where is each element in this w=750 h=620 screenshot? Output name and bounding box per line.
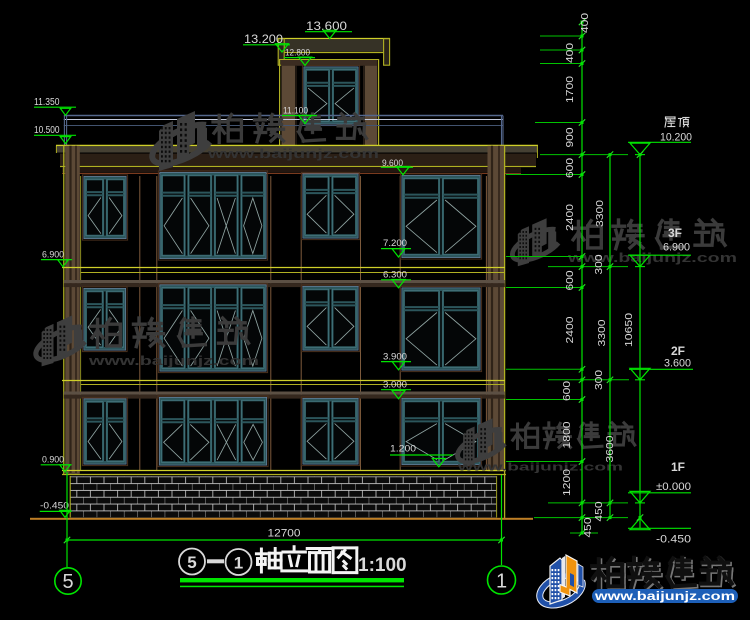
svg-text:www.baijunjz.com: www.baijunjz.com <box>206 146 379 161</box>
svg-text:6.900: 6.900 <box>663 242 690 254</box>
svg-text:400: 400 <box>579 13 591 33</box>
svg-text:www.baijunjz.com: www.baijunjz.com <box>456 462 623 474</box>
svg-text:1: 1 <box>496 571 507 593</box>
svg-text:1200: 1200 <box>561 469 573 496</box>
svg-text:1800: 1800 <box>561 421 573 448</box>
svg-text:12700: 12700 <box>268 528 301 540</box>
svg-text:3.000: 3.000 <box>383 380 407 391</box>
svg-text:1:100: 1:100 <box>358 555 407 576</box>
svg-text:1.200: 1.200 <box>390 444 416 455</box>
svg-text:2F: 2F <box>671 344 685 358</box>
svg-text:2400: 2400 <box>564 316 576 343</box>
svg-text:300: 300 <box>593 370 605 390</box>
svg-text:6.900: 6.900 <box>42 250 64 261</box>
svg-text:600: 600 <box>561 381 573 401</box>
svg-text:7.200: 7.200 <box>383 238 407 249</box>
svg-text:10.500: 10.500 <box>34 125 60 136</box>
svg-text:11.350: 11.350 <box>34 97 60 108</box>
svg-text:-0.450: -0.450 <box>656 534 691 546</box>
svg-text:450: 450 <box>593 501 605 521</box>
svg-text:3F: 3F <box>668 226 682 240</box>
svg-text:900: 900 <box>564 127 576 147</box>
svg-text:1700: 1700 <box>564 76 576 103</box>
svg-text:3300: 3300 <box>596 319 608 346</box>
svg-text:5: 5 <box>62 571 73 593</box>
svg-text:300: 300 <box>593 254 605 274</box>
svg-text:3.900: 3.900 <box>383 352 407 363</box>
svg-text:600: 600 <box>564 270 576 290</box>
svg-text:±0.000: ±0.000 <box>656 481 691 493</box>
svg-text:450: 450 <box>582 517 594 537</box>
svg-text:3300: 3300 <box>594 200 606 227</box>
svg-text:www.baijunjz.com: www.baijunjz.com <box>87 353 259 368</box>
svg-text:600: 600 <box>564 158 576 178</box>
svg-text:2400: 2400 <box>564 204 576 231</box>
svg-text:www.baijunjz.com: www.baijunjz.com <box>594 589 736 603</box>
svg-text:1: 1 <box>234 554 243 573</box>
svg-text:400: 400 <box>564 43 576 63</box>
svg-text:5: 5 <box>187 553 196 572</box>
svg-text:1F: 1F <box>671 460 685 474</box>
svg-text:10650: 10650 <box>623 313 635 347</box>
svg-text:3600: 3600 <box>604 435 616 462</box>
svg-text:0.900: 0.900 <box>42 455 64 466</box>
svg-text:3.600: 3.600 <box>664 358 691 370</box>
svg-text:6.300: 6.300 <box>383 270 407 281</box>
